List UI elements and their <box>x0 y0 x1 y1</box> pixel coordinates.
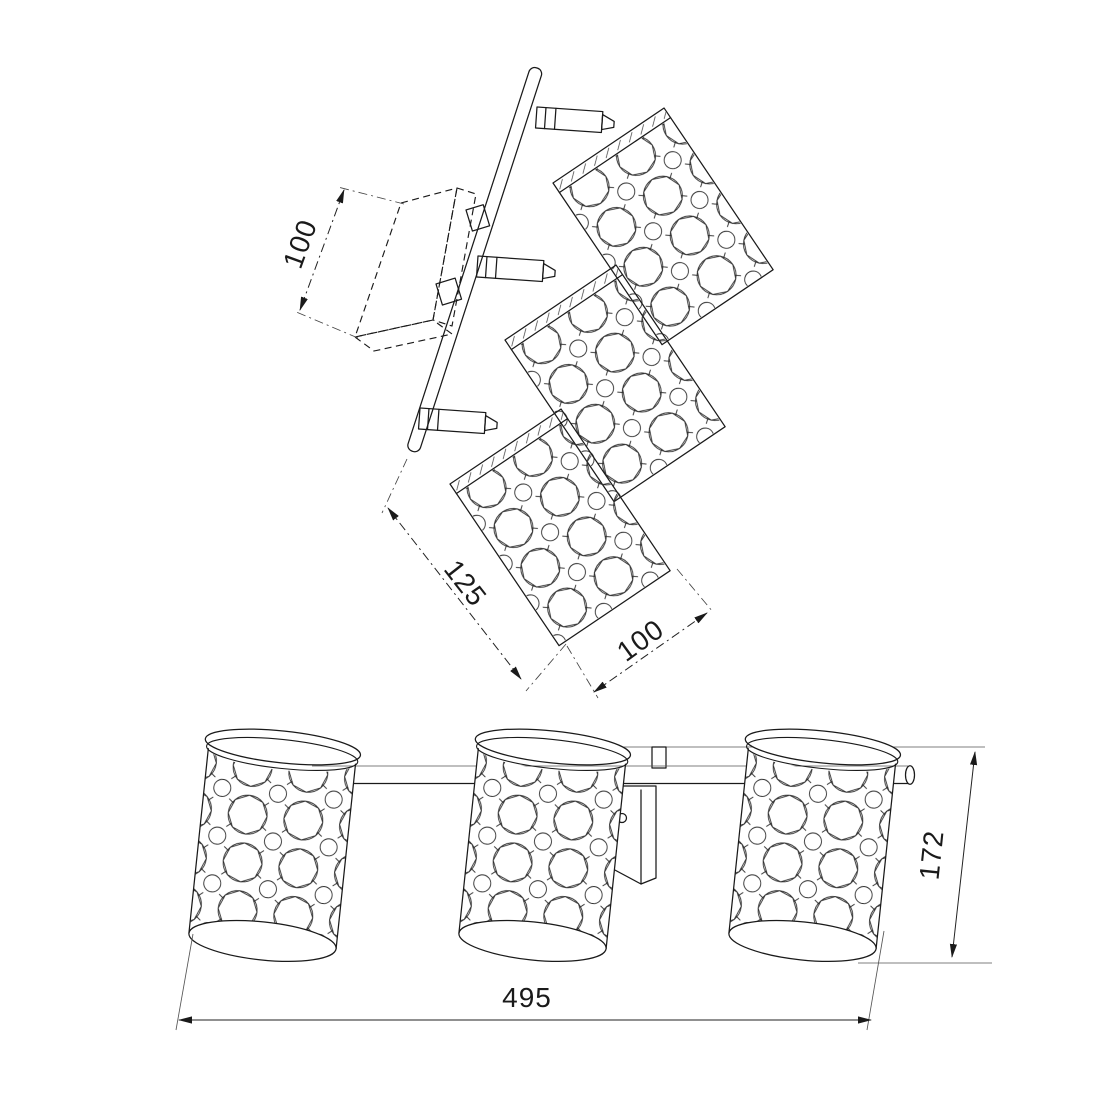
technical-drawing-page: 100 125 100 <box>0 0 1100 1100</box>
top-view: 100 125 100 <box>277 66 773 698</box>
connector-arm-1 <box>536 107 615 133</box>
dimension-label-canopy-depth: 100 <box>277 215 323 272</box>
cylinder-shade-right <box>723 723 902 968</box>
dimension-canopy-depth: 100 <box>277 187 404 338</box>
bar-end-cap <box>906 766 915 785</box>
connector-arm-3 <box>419 408 498 434</box>
connector-arm-2 <box>477 256 556 282</box>
cylinder-shade-left <box>183 723 362 968</box>
dimension-label-shade-length: 125 <box>438 554 493 612</box>
dimension-label-overall-width: 495 <box>502 982 552 1013</box>
cylinder-shade-middle <box>453 723 632 968</box>
front-view: 172 495 <box>176 723 992 1030</box>
fixture-dimension-drawing: 100 125 100 <box>0 0 1100 1100</box>
canopy-box <box>355 188 476 351</box>
dimension-label-overall-height: 172 <box>914 829 950 882</box>
dimension-label-shade-width: 100 <box>611 613 669 667</box>
